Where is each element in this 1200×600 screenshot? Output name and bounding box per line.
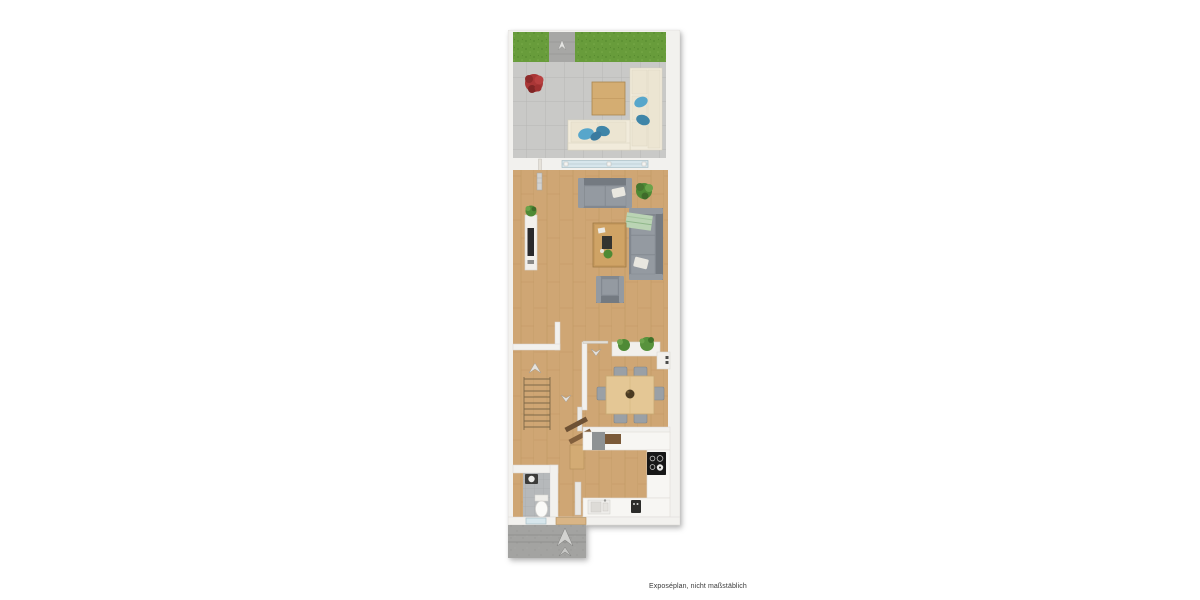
entry-door xyxy=(556,518,586,525)
two-seat-sofa xyxy=(578,178,632,208)
terrace xyxy=(513,62,666,158)
table-decor xyxy=(602,236,612,249)
grass-patch-right xyxy=(575,32,666,62)
floor-plan-image xyxy=(508,30,680,560)
terrace-wall xyxy=(513,158,668,171)
wc-window xyxy=(526,518,546,524)
floor-plan-svg xyxy=(508,30,680,560)
partition-wall xyxy=(582,342,587,410)
kitchen-sink xyxy=(588,499,610,514)
radiator xyxy=(575,482,581,515)
garden-strip xyxy=(513,32,666,62)
entrance xyxy=(508,517,680,558)
garden-path xyxy=(549,32,575,62)
armchair xyxy=(596,276,624,303)
outdoor-table xyxy=(592,82,625,115)
open-door-leaf xyxy=(583,341,608,344)
counter-wood-shelf xyxy=(605,434,621,444)
coffee-table xyxy=(593,223,626,267)
concrete-steps xyxy=(508,525,586,558)
grass-patch-left xyxy=(513,32,549,62)
cooktop xyxy=(647,452,666,475)
counter-dark-cabinet xyxy=(592,432,605,450)
partition-wall xyxy=(513,344,560,350)
page-canvas: Exposéplan, nicht maßstäblich xyxy=(0,0,1200,600)
tall-cabinet xyxy=(657,352,670,369)
disclaimer-text: Exposéplan, nicht maßstäblich xyxy=(649,582,747,591)
toilet xyxy=(535,495,548,517)
washbasin xyxy=(525,474,538,484)
radiator xyxy=(537,173,542,190)
terrace-side-door xyxy=(539,159,542,171)
dining-table xyxy=(606,376,654,414)
wc-wall xyxy=(550,465,558,517)
centerpiece xyxy=(626,390,635,399)
tv-sideboard xyxy=(525,206,537,271)
faucet-set xyxy=(631,500,641,513)
three-seat-sofa xyxy=(625,208,663,280)
